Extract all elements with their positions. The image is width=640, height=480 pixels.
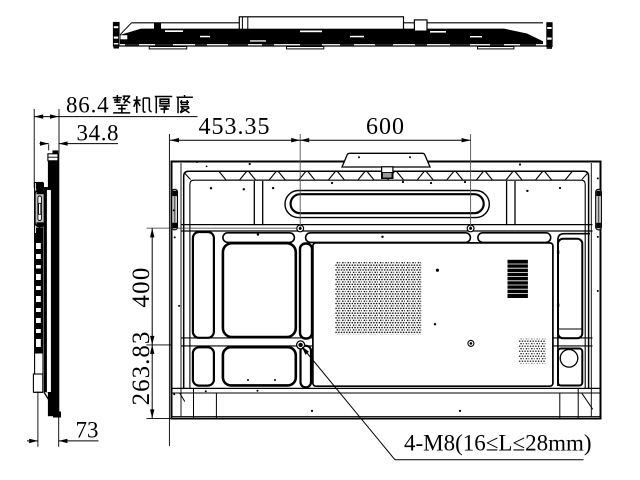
svg-text:453.35: 453.35 — [199, 114, 271, 140]
svg-text:86.4: 86.4 — [66, 93, 109, 118]
svg-text:73: 73 — [76, 418, 99, 443]
svg-text:263.83: 263.83 — [128, 331, 155, 406]
svg-text:4-M8(16≤L≤28mm): 4-M8(16≤L≤28mm) — [404, 431, 592, 456]
svg-text:34.8: 34.8 — [77, 121, 120, 146]
svg-text:400: 400 — [128, 266, 155, 307]
svg-text:600: 600 — [366, 114, 405, 140]
